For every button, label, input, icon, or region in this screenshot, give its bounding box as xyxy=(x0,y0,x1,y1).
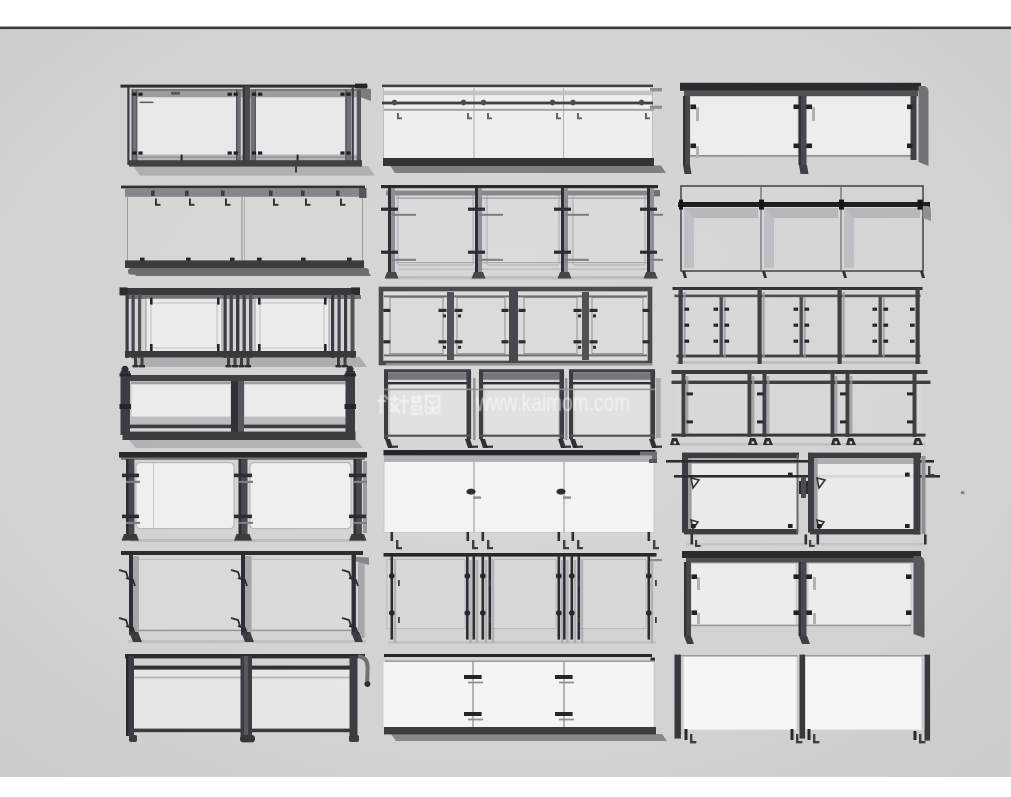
svg-text:www.kaimom.com: www.kaimom.com xyxy=(475,389,630,417)
